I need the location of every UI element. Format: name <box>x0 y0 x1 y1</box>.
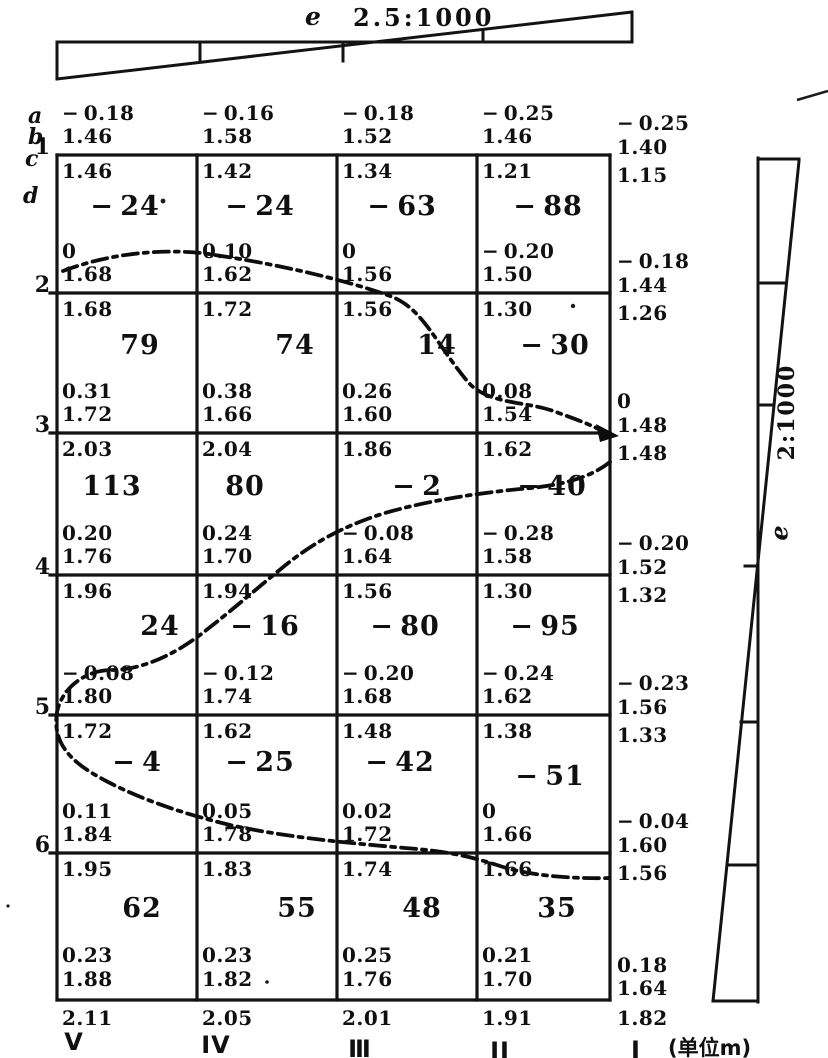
cell-value-r1-cII: − 88 <box>513 193 583 221</box>
cell-value-r4-cV: 24 <box>140 613 180 641</box>
value-a-line5-colIII: − 0.20 <box>342 663 414 684</box>
value-a-line4-colIII: − 0.08 <box>342 523 414 544</box>
value-b-line3-colIII: 1.60 <box>342 404 393 425</box>
value-a-line6-colII: 0 <box>482 801 496 822</box>
value-b-line2-colIV: 1.62 <box>202 264 253 285</box>
cell-value-r5-cIII: − 42 <box>365 749 435 777</box>
value-a-line2-colV: 0 <box>62 241 76 262</box>
value-a-line7-colV: 0.23 <box>62 945 113 966</box>
value-c-line7-colIV: 2.05 <box>202 1008 253 1029</box>
value-b-line1-colI: 1.40 <box>617 137 668 158</box>
cell-value-r1-cIV: − 24 <box>225 193 295 221</box>
units-label: (单位m) <box>668 1032 751 1058</box>
value-b-line3-colV: 1.72 <box>62 404 113 425</box>
value-b-line6-colIV: 1.78 <box>202 824 253 845</box>
value-a-line3-colV: 0.31 <box>62 381 113 402</box>
value-b-line1-colIII: 1.52 <box>342 126 393 147</box>
row-number-6: 6 <box>24 832 50 858</box>
cell-value-r2-cIII: 14 <box>417 332 457 360</box>
value-b-line3-colI: 1.48 <box>617 415 668 436</box>
row-number-4: 4 <box>24 554 50 580</box>
value-a-line1-colI: − 0.25 <box>617 113 689 134</box>
value-c-line4-colIII: 1.56 <box>342 581 393 602</box>
value-b-line5-colII: 1.62 <box>482 686 533 707</box>
column-label-IV: IV <box>201 1031 231 1058</box>
value-c-line7-colIII: 2.01 <box>342 1008 393 1029</box>
value-a-line4-colII: − 0.28 <box>482 523 554 544</box>
value-b-line6-colII: 1.66 <box>482 824 533 845</box>
value-b-line7-colII: 1.70 <box>482 969 533 990</box>
column-label-II: II <box>490 1037 510 1058</box>
value-a-line2-colIII: 0 <box>342 241 356 262</box>
cell-value-r5-cII: − 51 <box>515 763 585 791</box>
cell-value-r5-cV: − 4 <box>112 749 162 777</box>
value-c-line3-colIII: 1.86 <box>342 439 393 460</box>
cell-value-r4-cIV: − 16 <box>230 613 300 641</box>
cell-value-r2-cIV: 74 <box>275 332 315 360</box>
value-a-line1-colIV: − 0.16 <box>202 103 274 124</box>
value-b-line5-colI: 1.56 <box>617 697 668 718</box>
value-a-line3-colIV: 0.38 <box>202 381 253 402</box>
value-b-line5-colV: 1.80 <box>62 686 113 707</box>
value-c-line4-colIV: 1.94 <box>202 581 253 602</box>
value-a-line1-colII: − 0.25 <box>482 103 554 124</box>
value-b-line1-colII: 1.46 <box>482 126 533 147</box>
value-c-line6-colIV: 1.83 <box>202 859 253 880</box>
value-a-line5-colII: − 0.24 <box>482 663 554 684</box>
value-b-line1-colIV: 1.58 <box>202 126 253 147</box>
value-a-line6-colV: 0.11 <box>62 801 113 822</box>
value-a-line1-colIII: − 0.18 <box>342 103 414 124</box>
value-a-line6-colIV: 0.05 <box>202 801 253 822</box>
value-a-line3-colI: 0 <box>617 391 631 412</box>
value-a-line4-colI: − 0.20 <box>617 533 689 554</box>
value-c-line1-colIII: 1.34 <box>342 161 393 182</box>
value-c-line4-colII: 1.30 <box>482 581 533 602</box>
row-number-5: 5 <box>24 694 50 720</box>
axis-letter-d: d <box>23 183 38 209</box>
row-number-2: 2 <box>24 272 50 298</box>
value-a-line4-colIV: 0.24 <box>202 523 253 544</box>
value-b-line4-colV: 1.76 <box>62 546 113 567</box>
value-c-line3-colIV: 2.04 <box>202 439 253 460</box>
value-c-line5-colIV: 1.62 <box>202 721 253 742</box>
value-b-line4-colI: 1.52 <box>617 557 668 578</box>
zero-line-arrowhead <box>596 424 619 442</box>
value-b-line3-colII: 1.54 <box>482 404 533 425</box>
right-indicator-scale-label: 2:1000 <box>774 364 800 461</box>
value-a-line6-colI: − 0.04 <box>617 811 689 832</box>
value-c-line2-colIV: 1.72 <box>202 299 253 320</box>
value-c-line1-colIV: 1.42 <box>202 161 253 182</box>
value-c-line6-colV: 1.95 <box>62 859 113 880</box>
value-c-line2-colI: 1.26 <box>617 303 668 324</box>
value-b-line2-colIII: 1.56 <box>342 264 393 285</box>
value-c-line5-colIII: 1.48 <box>342 721 393 742</box>
value-b-line5-colIII: 1.68 <box>342 686 393 707</box>
right-indicator-e-label: e <box>765 525 794 540</box>
cell-value-r6-cIII: 48 <box>402 895 442 923</box>
column-label-III: Ⅲ <box>348 1035 372 1058</box>
value-c-line1-colI: 1.15 <box>617 165 668 186</box>
stray-edge-mark <box>797 91 828 100</box>
column-label-V: V <box>64 1028 84 1056</box>
value-a-line3-colII: 0.08 <box>482 381 533 402</box>
value-c-line7-colV: 2.11 <box>62 1008 113 1029</box>
value-a-line5-colI: − 0.23 <box>617 673 689 694</box>
value-c-line1-colII: 1.21 <box>482 161 533 182</box>
value-b-line2-colI: 1.44 <box>617 275 668 296</box>
value-b-line2-colV: 1.68 <box>62 264 113 285</box>
value-c-line2-colII: 1.30 <box>482 299 533 320</box>
value-a-line5-colIV: − 0.12 <box>202 663 274 684</box>
cell-value-r3-cII: − 40 <box>517 473 587 501</box>
value-c-line2-colIII: 1.56 <box>342 299 393 320</box>
value-c-line6-colI: 1.56 <box>617 863 668 884</box>
value-b-line7-colIII: 1.76 <box>342 969 393 990</box>
value-b-line6-colIII: 1.72 <box>342 824 393 845</box>
value-b-line4-colIV: 1.70 <box>202 546 253 567</box>
right-slope-indicator <box>713 158 799 1002</box>
cell-value-r2-cV: 79 <box>120 332 160 360</box>
cell-value-r5-cIV: − 25 <box>225 749 295 777</box>
cell-value-r1-cIII: − 63 <box>367 193 437 221</box>
value-c-line2-colV: 1.68 <box>62 299 113 320</box>
cell-value-r6-cV: 62 <box>122 895 162 923</box>
value-c-line5-colI: 1.33 <box>617 725 668 746</box>
row-number-1: 1 <box>24 134 50 160</box>
cell-value-r2-cII: − 30 <box>520 332 590 360</box>
value-c-line5-colII: 1.38 <box>482 721 533 742</box>
value-b-line3-colIV: 1.66 <box>202 404 253 425</box>
top-slope-indicator <box>57 12 632 79</box>
value-a-line4-colV: 0.20 <box>62 523 113 544</box>
value-c-line7-colI: 1.82 <box>617 1008 668 1029</box>
cell-value-r3-cIII: − 2 <box>392 473 442 501</box>
cell-value-r4-cII: − 95 <box>510 613 580 641</box>
value-a-line2-colI: − 0.18 <box>617 251 689 272</box>
value-b-line2-colII: 1.50 <box>482 264 533 285</box>
cell-value-r6-cIV: 55 <box>277 895 317 923</box>
value-a-line2-colIV: 0.10 <box>202 241 253 262</box>
value-b-line1-colV: 1.46 <box>62 126 113 147</box>
value-b-line4-colIII: 1.64 <box>342 546 393 567</box>
value-c-line7-colII: 1.91 <box>482 1008 533 1029</box>
value-c-line3-colII: 1.62 <box>482 439 533 460</box>
value-a-line5-colV: − 0.08 <box>62 663 134 684</box>
value-a-line6-colIII: 0.02 <box>342 801 393 822</box>
cell-value-r3-cIV: 80 <box>225 473 265 501</box>
row-number-3: 3 <box>24 412 50 438</box>
value-c-line3-colV: 2.03 <box>62 439 113 460</box>
value-c-line6-colII: 1.66 <box>482 859 533 880</box>
cell-value-r1-cV: − 24 <box>90 193 160 221</box>
value-a-line7-colI: 0.18 <box>617 955 668 976</box>
value-c-line4-colV: 1.96 <box>62 581 113 602</box>
value-b-line7-colIV: 1.82 <box>202 969 253 990</box>
value-b-line4-colII: 1.58 <box>482 546 533 567</box>
value-b-line7-colV: 1.88 <box>62 969 113 990</box>
value-a-line7-colIII: 0.25 <box>342 945 393 966</box>
top-indicator-scale-label: 2.5:1000 <box>353 3 494 32</box>
column-label-I: I <box>631 1036 641 1058</box>
cell-value-r6-cII: 35 <box>537 895 577 923</box>
value-a-line2-colII: − 0.20 <box>482 241 554 262</box>
cell-value-r4-cIII: − 80 <box>370 613 440 641</box>
value-a-line7-colIV: 0.23 <box>202 945 253 966</box>
value-c-line4-colI: 1.32 <box>617 585 668 606</box>
value-a-line1-colV: − 0.18 <box>62 103 134 124</box>
value-b-line7-colI: 1.64 <box>617 978 668 999</box>
value-b-line5-colIV: 1.74 <box>202 686 253 707</box>
value-c-line6-colIII: 1.74 <box>342 859 393 880</box>
value-c-line1-colV: 1.46 <box>62 161 113 182</box>
top-indicator-e-label: e <box>305 2 321 31</box>
cell-value-r3-cV: 113 <box>82 473 141 501</box>
leveling-grid-figure: e 2.5:1000 2:1000 e (单位m) − 0.181.461.46… <box>0 0 828 1058</box>
value-b-line6-colI: 1.60 <box>617 835 668 856</box>
value-c-line5-colV: 1.72 <box>62 721 113 742</box>
value-a-line7-colII: 0.21 <box>482 945 533 966</box>
value-b-line6-colV: 1.84 <box>62 824 113 845</box>
value-a-line3-colIII: 0.26 <box>342 381 393 402</box>
value-c-line3-colI: 1.48 <box>617 443 668 464</box>
